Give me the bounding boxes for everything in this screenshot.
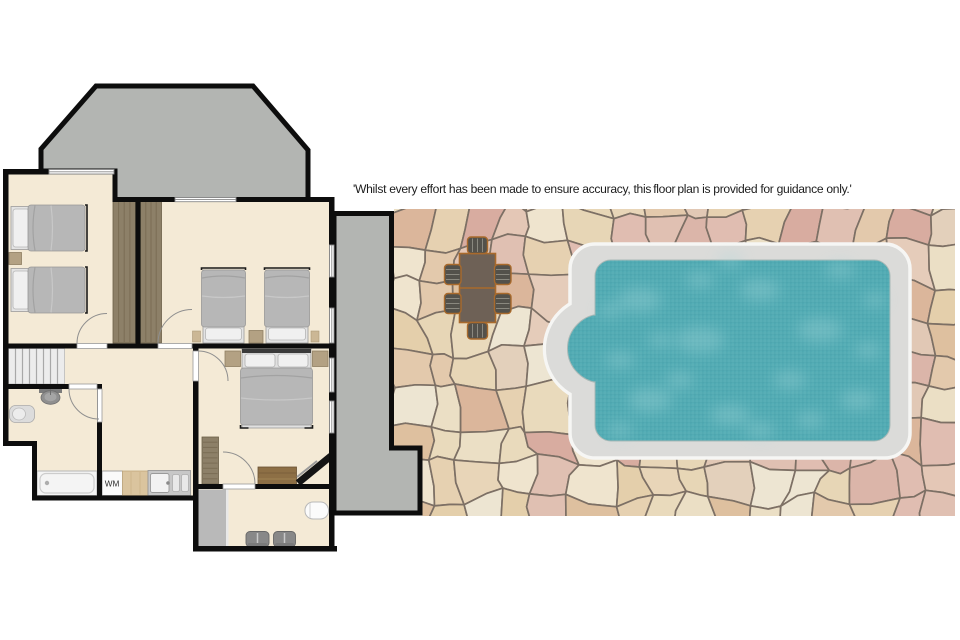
svg-text:WM: WM [105, 480, 120, 489]
